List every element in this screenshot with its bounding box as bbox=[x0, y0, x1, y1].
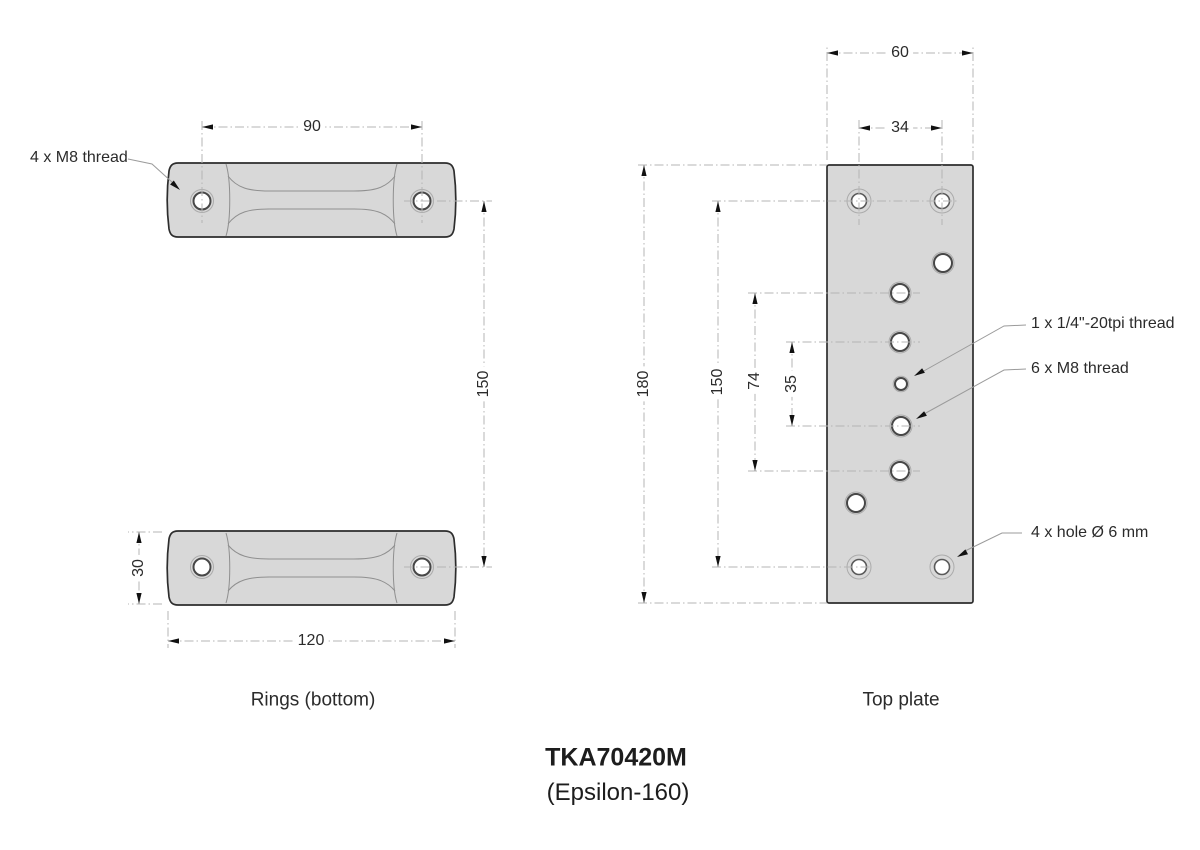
technical-drawing-page: .part{fill:#d8d8d8;stroke:#2d2d2d;stroke… bbox=[0, 0, 1200, 850]
dim-arrow bbox=[789, 342, 794, 353]
dim-arrow bbox=[715, 201, 720, 212]
dim-arrow bbox=[168, 638, 179, 643]
dim-arrow bbox=[789, 415, 794, 426]
dim-arrow bbox=[827, 50, 838, 55]
dim-180-label: 180 bbox=[636, 367, 652, 402]
dim-arrow bbox=[641, 592, 646, 603]
dim-arrow bbox=[136, 532, 141, 543]
dim-90-label: 90 bbox=[299, 119, 325, 135]
plate-quarter-thread-annotation: 1 x 1/4"-20tpi thread bbox=[1031, 316, 1175, 332]
dim-arrow bbox=[136, 593, 141, 604]
dim-arrow bbox=[962, 50, 973, 55]
dim-arrow bbox=[752, 460, 757, 471]
model-title: TKA70420M bbox=[545, 746, 687, 771]
dim-30-label: 30 bbox=[131, 555, 147, 581]
dim-150-rings-label: 150 bbox=[476, 367, 492, 402]
plate-m8-thread-annotation: 6 x M8 thread bbox=[1031, 361, 1129, 377]
dim-arrow bbox=[202, 124, 213, 129]
dim-arrow bbox=[859, 125, 870, 130]
dim-34-label: 34 bbox=[887, 120, 913, 136]
plate-corner-holes-annotation: 4 x hole Ø 6 mm bbox=[1031, 525, 1148, 541]
dim-arrow bbox=[481, 201, 486, 212]
dim-120-label: 120 bbox=[294, 633, 329, 649]
rings-thread-annotation: 4 x M8 thread bbox=[30, 150, 128, 166]
drawing-canvas: .part{fill:#d8d8d8;stroke:#2d2d2d;stroke… bbox=[0, 0, 1200, 850]
hole bbox=[935, 560, 950, 575]
rings-bottom-ring bbox=[167, 531, 456, 605]
rings-view-caption: Rings (bottom) bbox=[251, 691, 376, 710]
dim-60-label: 60 bbox=[887, 45, 913, 61]
hole bbox=[194, 559, 211, 576]
dim-arrow bbox=[752, 293, 757, 304]
hole bbox=[934, 254, 952, 272]
dim-arrow bbox=[481, 556, 486, 567]
leader-line bbox=[128, 159, 173, 183]
rings-top-ring bbox=[167, 163, 456, 237]
dim-74-label: 74 bbox=[747, 368, 763, 394]
hole bbox=[895, 378, 907, 390]
model-variant: (Epsilon-160) bbox=[547, 781, 690, 805]
hole bbox=[847, 494, 865, 512]
dim-arrow bbox=[931, 125, 942, 130]
dim-arrow bbox=[411, 124, 422, 129]
dim-arrow bbox=[641, 165, 646, 176]
dim-arrow bbox=[444, 638, 455, 643]
dim-arrow bbox=[715, 556, 720, 567]
dim-150-plate-label: 150 bbox=[710, 365, 726, 400]
plate-view-caption: Top plate bbox=[862, 691, 939, 710]
dim-35-label: 35 bbox=[784, 371, 800, 397]
